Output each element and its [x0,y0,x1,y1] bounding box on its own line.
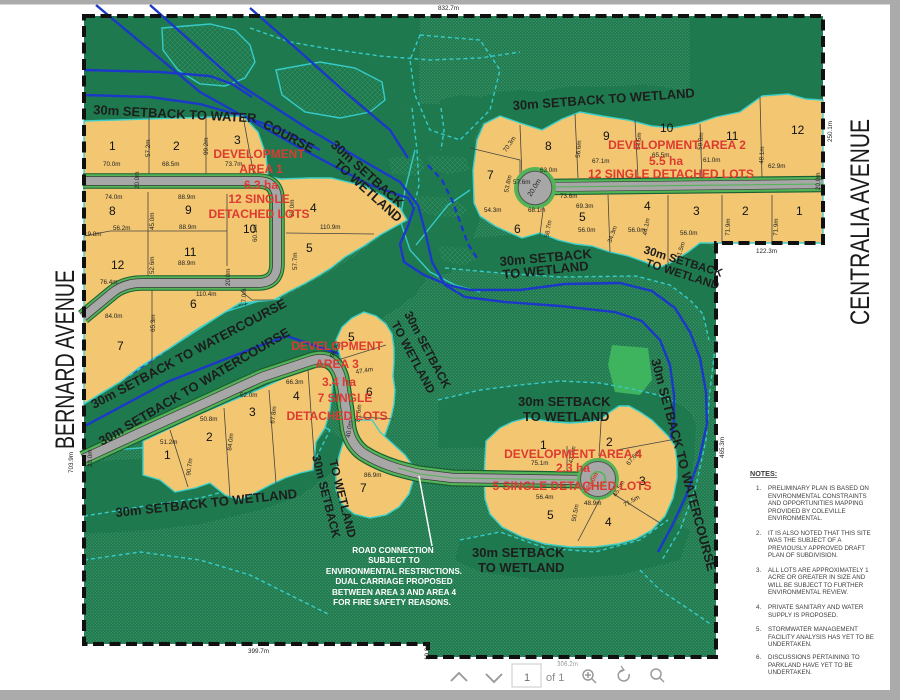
svg-text:7: 7 [117,339,124,353]
svg-text:69.3m: 69.3m [576,203,594,210]
svg-text:66.3m: 66.3m [286,379,304,386]
svg-text:TO WETLAND: TO WETLAND [478,560,564,575]
svg-text:6: 6 [514,222,521,236]
svg-text:57.2m: 57.2m [145,139,152,157]
svg-text:56.0m: 56.0m [680,230,698,237]
svg-text:30m SETBACK: 30m SETBACK [518,394,611,409]
svg-text:PROVIDED BY COLEVILLE: PROVIDED BY COLEVILLE [768,508,846,515]
svg-text:2: 2 [206,430,213,444]
svg-text:110.4m: 110.4m [196,291,217,298]
svg-text:61.0m: 61.0m [703,157,721,164]
svg-text:19.0m: 19.0m [424,642,431,660]
svg-text:DEVELOPMENT AREA 4: DEVELOPMENT AREA 4 [504,447,642,461]
svg-text:5.5 ha: 5.5 ha [649,154,683,168]
svg-text:DISCUSSIONS PERTAINING TO: DISCUSSIONS PERTAINING TO [768,654,860,661]
svg-text:74.0m: 74.0m [105,194,123,201]
svg-text:48.1m: 48.1m [758,146,766,164]
svg-text:20.0m: 20.0m [87,449,94,467]
svg-text:1: 1 [164,448,171,462]
svg-text:56.0m: 56.0m [578,227,596,234]
svg-text:7: 7 [487,168,494,182]
svg-text:DUAL CARRIAGE PROPOSED: DUAL CARRIAGE PROPOSED [335,577,452,586]
svg-text:2.3 ha: 2.3 ha [556,461,590,475]
svg-text:4: 4 [310,201,317,215]
svg-text:30m SETBACK: 30m SETBACK [472,545,565,560]
svg-text:3: 3 [249,405,256,419]
svg-text:DETACHED LOTS: DETACHED LOTS [286,409,387,423]
svg-text:70.0m: 70.0m [103,161,121,168]
svg-text:6: 6 [190,297,197,311]
svg-text:WAS THE SUBJECT OF A: WAS THE SUBJECT OF A [768,537,842,544]
svg-text:6.: 6. [756,654,761,661]
svg-text:PRELIMINARY PLAN IS BASED ON: PRELIMINARY PLAN IS BASED ON [768,485,869,492]
svg-text:67.1m: 67.1m [592,158,610,165]
svg-text:UNDERTAKEN.: UNDERTAKEN. [768,641,812,648]
svg-text:7 SINGLE: 7 SINGLE [318,391,373,405]
svg-text:88.9m: 88.9m [179,224,197,231]
svg-text:2: 2 [173,139,180,153]
svg-text:UNDERTAKEN.: UNDERTAKEN. [768,669,812,676]
svg-text:65.3m: 65.3m [150,314,157,332]
svg-text:50.8m: 50.8m [200,416,218,423]
svg-text:1: 1 [524,672,530,684]
svg-text:110.9m: 110.9m [320,224,341,231]
svg-text:399.7m: 399.7m [248,648,269,655]
svg-text:57.6m: 57.6m [513,179,531,186]
svg-text:5.: 5. [756,626,761,633]
svg-text:250.1m: 250.1m [827,121,834,142]
svg-text:BERNARD AVENUE: BERNARD AVENUE [50,270,80,449]
svg-text:57.7m: 57.7m [292,252,299,270]
svg-text:ACRE OR GREATER IN SIZE AND: ACRE OR GREATER IN SIZE AND [768,574,866,581]
svg-text:3.4 ha: 3.4 ha [322,375,356,389]
svg-text:FOR FIRE SAFETY REASONS.: FOR FIRE SAFETY REASONS. [333,598,451,607]
svg-text:68.1m: 68.1m [528,207,546,214]
svg-text:11: 11 [184,245,197,259]
svg-text:PARKLAND HAVE YET TO BE: PARKLAND HAVE YET TO BE [768,662,853,669]
svg-text:12 SINGLE: 12 SINGLE [228,192,289,206]
svg-text:1.: 1. [756,485,761,492]
svg-text:71.9m: 71.9m [724,218,732,236]
svg-text:8: 8 [109,204,116,218]
svg-text:ROAD CONNECTION: ROAD CONNECTION [352,546,434,555]
svg-text:17.0m: 17.0m [241,288,248,306]
svg-text:ENVIRONMENTAL.: ENVIRONMENTAL. [768,515,823,522]
svg-text:68.5m: 68.5m [162,161,180,168]
svg-text:12: 12 [791,123,805,137]
svg-text:of 1: of 1 [546,672,564,684]
svg-text:4: 4 [644,199,651,213]
svg-text:75.1m: 75.1m [531,460,549,467]
svg-text:3.: 3. [756,567,761,574]
svg-text:PREVIOUSLY APPROVED DRAFT: PREVIOUSLY APPROVED DRAFT [768,545,865,552]
svg-text:20.0m: 20.0m [134,171,141,189]
svg-text:IT IS ALSO NOTED THAT THIS SIT: IT IS ALSO NOTED THAT THIS SITE [768,530,871,537]
svg-text:54.3m: 54.3m [484,207,502,214]
svg-text:4: 4 [605,515,612,529]
svg-text:45.0m: 45.0m [149,212,156,230]
svg-text:99.2m: 99.2m [203,137,210,155]
svg-text:465.3m: 465.3m [719,437,726,458]
svg-text:DETACHED LOTS: DETACHED LOTS [208,207,309,221]
svg-text:84.0m: 84.0m [105,313,123,320]
svg-text:60.1m: 60.1m [252,224,259,242]
svg-text:AND OPPORTUNITIES MAPPING: AND OPPORTUNITIES MAPPING [768,500,864,507]
svg-text:1: 1 [796,204,803,218]
svg-text:71.9m: 71.9m [772,218,780,236]
svg-text:52.6m: 52.6m [149,256,156,274]
svg-text:5: 5 [547,508,554,522]
svg-text:56.2m: 56.2m [113,225,131,232]
svg-text:20.0m: 20.0m [225,268,232,286]
svg-text:5 SINGLE DETACHED LOTS: 5 SINGLE DETACHED LOTS [492,479,651,493]
svg-text:51.2m: 51.2m [160,439,178,446]
svg-text:1: 1 [109,139,116,153]
svg-text:8: 8 [545,139,552,153]
svg-text:WILL BE SUBJECT TO FURTHER: WILL BE SUBJECT TO FURTHER [768,582,864,589]
svg-text:ALL LOTS ARE APPROXIMATELY 1: ALL LOTS ARE APPROXIMATELY 1 [768,567,869,574]
svg-text:10: 10 [660,121,674,135]
svg-text:20.0m: 20.0m [815,172,822,190]
svg-text:CENTRALIA AVENUE: CENTRALIA AVENUE [845,119,875,325]
svg-text:9: 9 [185,203,192,217]
svg-text:AREA 3: AREA 3 [315,357,359,371]
svg-text:88.9m: 88.9m [178,194,196,201]
svg-text:NOTES:: NOTES: [750,469,777,478]
svg-text:63.0m: 63.0m [540,167,558,174]
svg-text:4: 4 [293,389,300,403]
svg-text:2.: 2. [756,530,761,537]
svg-text:STORMWATER MANAGEMENT: STORMWATER MANAGEMENT [768,626,858,633]
svg-text:ENVIRONMENTAL REVIEW.: ENVIRONMENTAL REVIEW. [768,589,848,596]
svg-text:DEVELOPMENT AREA 2: DEVELOPMENT AREA 2 [608,138,746,152]
svg-text:86.9m: 86.9m [364,472,382,479]
svg-text:5: 5 [579,210,586,224]
svg-text:19.8m: 19.8m [84,231,102,238]
svg-text:52.0m: 52.0m [240,392,258,399]
svg-text:88.9m: 88.9m [178,260,196,267]
svg-text:12: 12 [111,258,125,272]
svg-text:73.6m: 73.6m [560,193,578,200]
svg-text:SUBJECT TO: SUBJECT TO [368,556,420,565]
svg-text:122.3m: 122.3m [756,248,777,255]
svg-text:4.: 4. [756,604,761,611]
svg-text:5: 5 [306,241,313,255]
svg-text:DEVELOPMENT: DEVELOPMENT [291,339,383,353]
svg-text:6.3 ha: 6.3 ha [244,178,278,192]
svg-text:ENVIRONMENTAL RESTRICTIONS.: ENVIRONMENTAL RESTRICTIONS. [326,567,462,576]
svg-text:3: 3 [693,204,700,218]
svg-text:SUPPLY IS PROPOSED.: SUPPLY IS PROPOSED. [768,612,838,619]
svg-text:2: 2 [742,204,749,218]
svg-text:832.7m: 832.7m [438,5,459,12]
svg-text:PRIVATE SANITARY AND WATER: PRIVATE SANITARY AND WATER [768,604,864,611]
svg-text:AREA 1: AREA 1 [239,162,283,176]
svg-text:TO WETLAND: TO WETLAND [523,409,609,424]
svg-text:56.4m: 56.4m [536,494,554,501]
svg-text:DEVELOPMENT: DEVELOPMENT [213,147,305,161]
svg-text:48.9m: 48.9m [584,500,602,507]
svg-text:7: 7 [360,481,367,495]
svg-text:BETWEEN AREA 3 AND AREA 4: BETWEEN AREA 3 AND AREA 4 [332,588,456,597]
svg-text:ENVIRONMENTAL CONSTRAINTS: ENVIRONMENTAL CONSTRAINTS [768,493,867,500]
svg-text:FACILITY ANALYSIS HAS YET TO B: FACILITY ANALYSIS HAS YET TO BE [768,634,874,641]
svg-text:3: 3 [234,133,241,147]
svg-text:PLAN OF SUBDIVISION.: PLAN OF SUBDIVISION. [768,552,838,559]
svg-text:12 SINGLE DETACHED LOTS: 12 SINGLE DETACHED LOTS [588,167,754,181]
svg-text:703.9m: 703.9m [68,452,75,473]
svg-text:76.4m: 76.4m [100,279,118,286]
svg-text:62.9m: 62.9m [768,163,786,170]
